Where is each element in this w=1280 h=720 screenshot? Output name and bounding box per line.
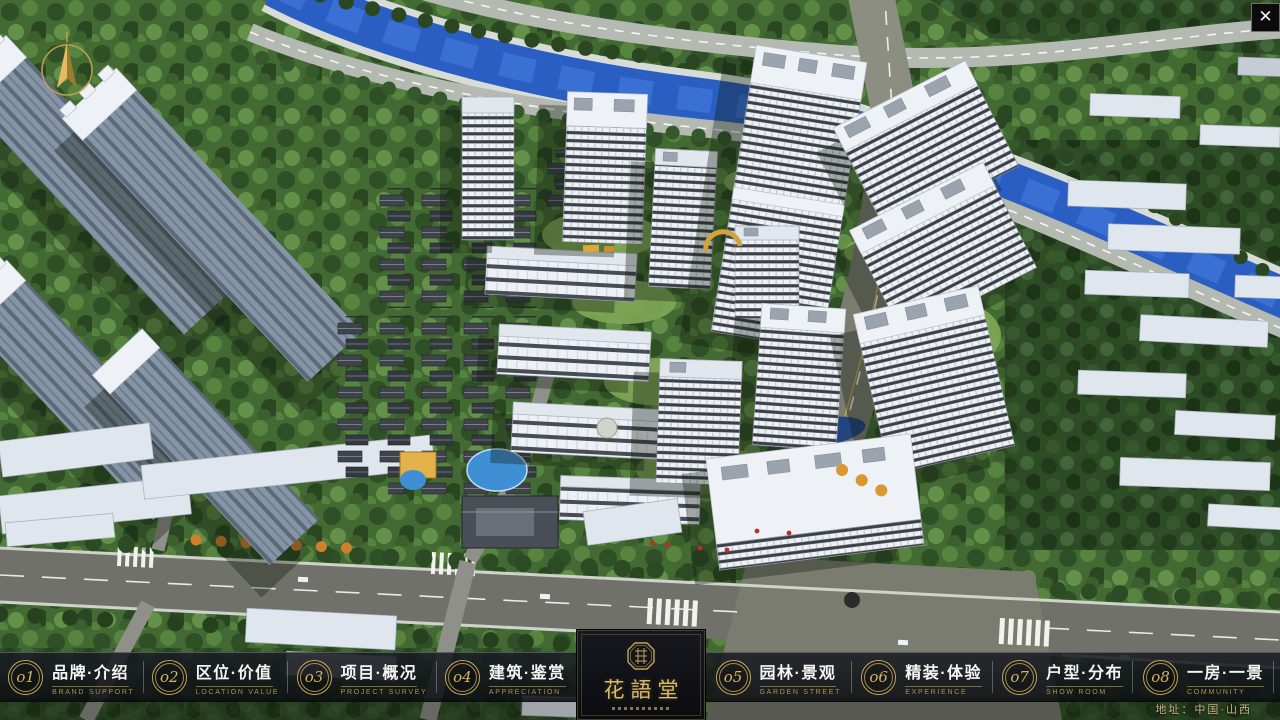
brand-logo-button[interactable]: 花語堂 <box>577 630 705 720</box>
nav-separator <box>851 661 852 693</box>
navbar-left-group: o1 品牌·介绍BRAND SUPPORT o2 区位·价值LOCATION V… <box>0 653 574 701</box>
nav-separator <box>1273 661 1274 693</box>
nav-label-en: PROJECT SURVEY <box>341 689 428 696</box>
nav-number-icon: o8 <box>1143 660 1178 695</box>
nav-label-en: APPRECIATION <box>489 689 561 696</box>
close-icon: ✕ <box>1258 9 1272 26</box>
nav-label-en: EXPERIENCE <box>905 689 967 696</box>
project-address: 地址：中国·山西 <box>1155 701 1252 717</box>
nav-label-zh: 一房·一景 <box>1187 659 1264 687</box>
nav-separator <box>143 661 144 693</box>
nav-number-icon: o3 <box>297 660 332 695</box>
nav-label-zh: 园林·景观 <box>760 659 837 687</box>
navbar-right-group: o5 园林·景观GARDEN STREET o6 精装·体验EXPERIENCE… <box>706 653 1280 701</box>
nav-separator <box>992 661 993 693</box>
nav-label-en: SHOW ROOM <box>1046 689 1107 696</box>
nav-number-icon: o4 <box>445 660 480 695</box>
nav-label-en: LOCATION VALUE <box>196 689 279 696</box>
nav-label-en: GARDEN STREET <box>760 689 842 696</box>
nav-label-en: COMMUNITY <box>1187 689 1245 696</box>
nav-label-zh: 区位·价值 <box>196 659 273 687</box>
nav-item-location[interactable]: o2 区位·价值LOCATION VALUE <box>148 653 283 701</box>
compass-icon <box>34 30 100 102</box>
nav-item-community[interactable]: o8 一房·一景COMMUNITY <box>1139 653 1268 701</box>
nav-label-zh: 建筑·鉴赏 <box>489 659 566 687</box>
brand-seal-icon <box>626 641 656 671</box>
nav-number-icon: o6 <box>861 660 896 695</box>
nav-number-icon: o2 <box>152 660 187 695</box>
brand-name: 花語堂 <box>598 674 685 704</box>
nav-label-zh: 品牌·介绍 <box>52 659 129 687</box>
nav-number-icon: o1 <box>8 660 43 695</box>
nav-item-floorplan[interactable]: o7 户型·分布SHOW ROOM <box>998 653 1127 701</box>
nav-separator <box>436 661 437 693</box>
brand-subtitle-ornament <box>612 707 670 710</box>
nav-number-icon: o5 <box>716 660 751 695</box>
nav-item-interior[interactable]: o6 精装·体验EXPERIENCE <box>857 653 986 701</box>
nav-separator <box>287 661 288 693</box>
nav-number-icon: o7 <box>1002 660 1037 695</box>
app-window: ✕ o1 品牌·介绍BRAND SUPPORT o2 区位·价值LOCATION… <box>0 0 1280 720</box>
nav-label-zh: 精装·体验 <box>905 659 982 687</box>
nav-item-brand[interactable]: o1 品牌·介绍BRAND SUPPORT <box>4 653 138 701</box>
nav-label-zh: 项目·概况 <box>341 659 418 687</box>
nav-item-garden[interactable]: o5 园林·景观GARDEN STREET <box>712 653 846 701</box>
nav-item-architecture[interactable]: o4 建筑·鉴赏APPRECIATION <box>441 653 570 701</box>
nav-separator <box>1132 661 1133 693</box>
masterplan-render <box>0 0 1280 720</box>
nav-label-en: BRAND SUPPORT <box>52 689 134 696</box>
nav-item-project[interactable]: o3 项目·概况PROJECT SURVEY <box>293 653 432 701</box>
close-button[interactable]: ✕ <box>1251 3 1280 32</box>
nav-label-zh: 户型·分布 <box>1046 659 1123 687</box>
